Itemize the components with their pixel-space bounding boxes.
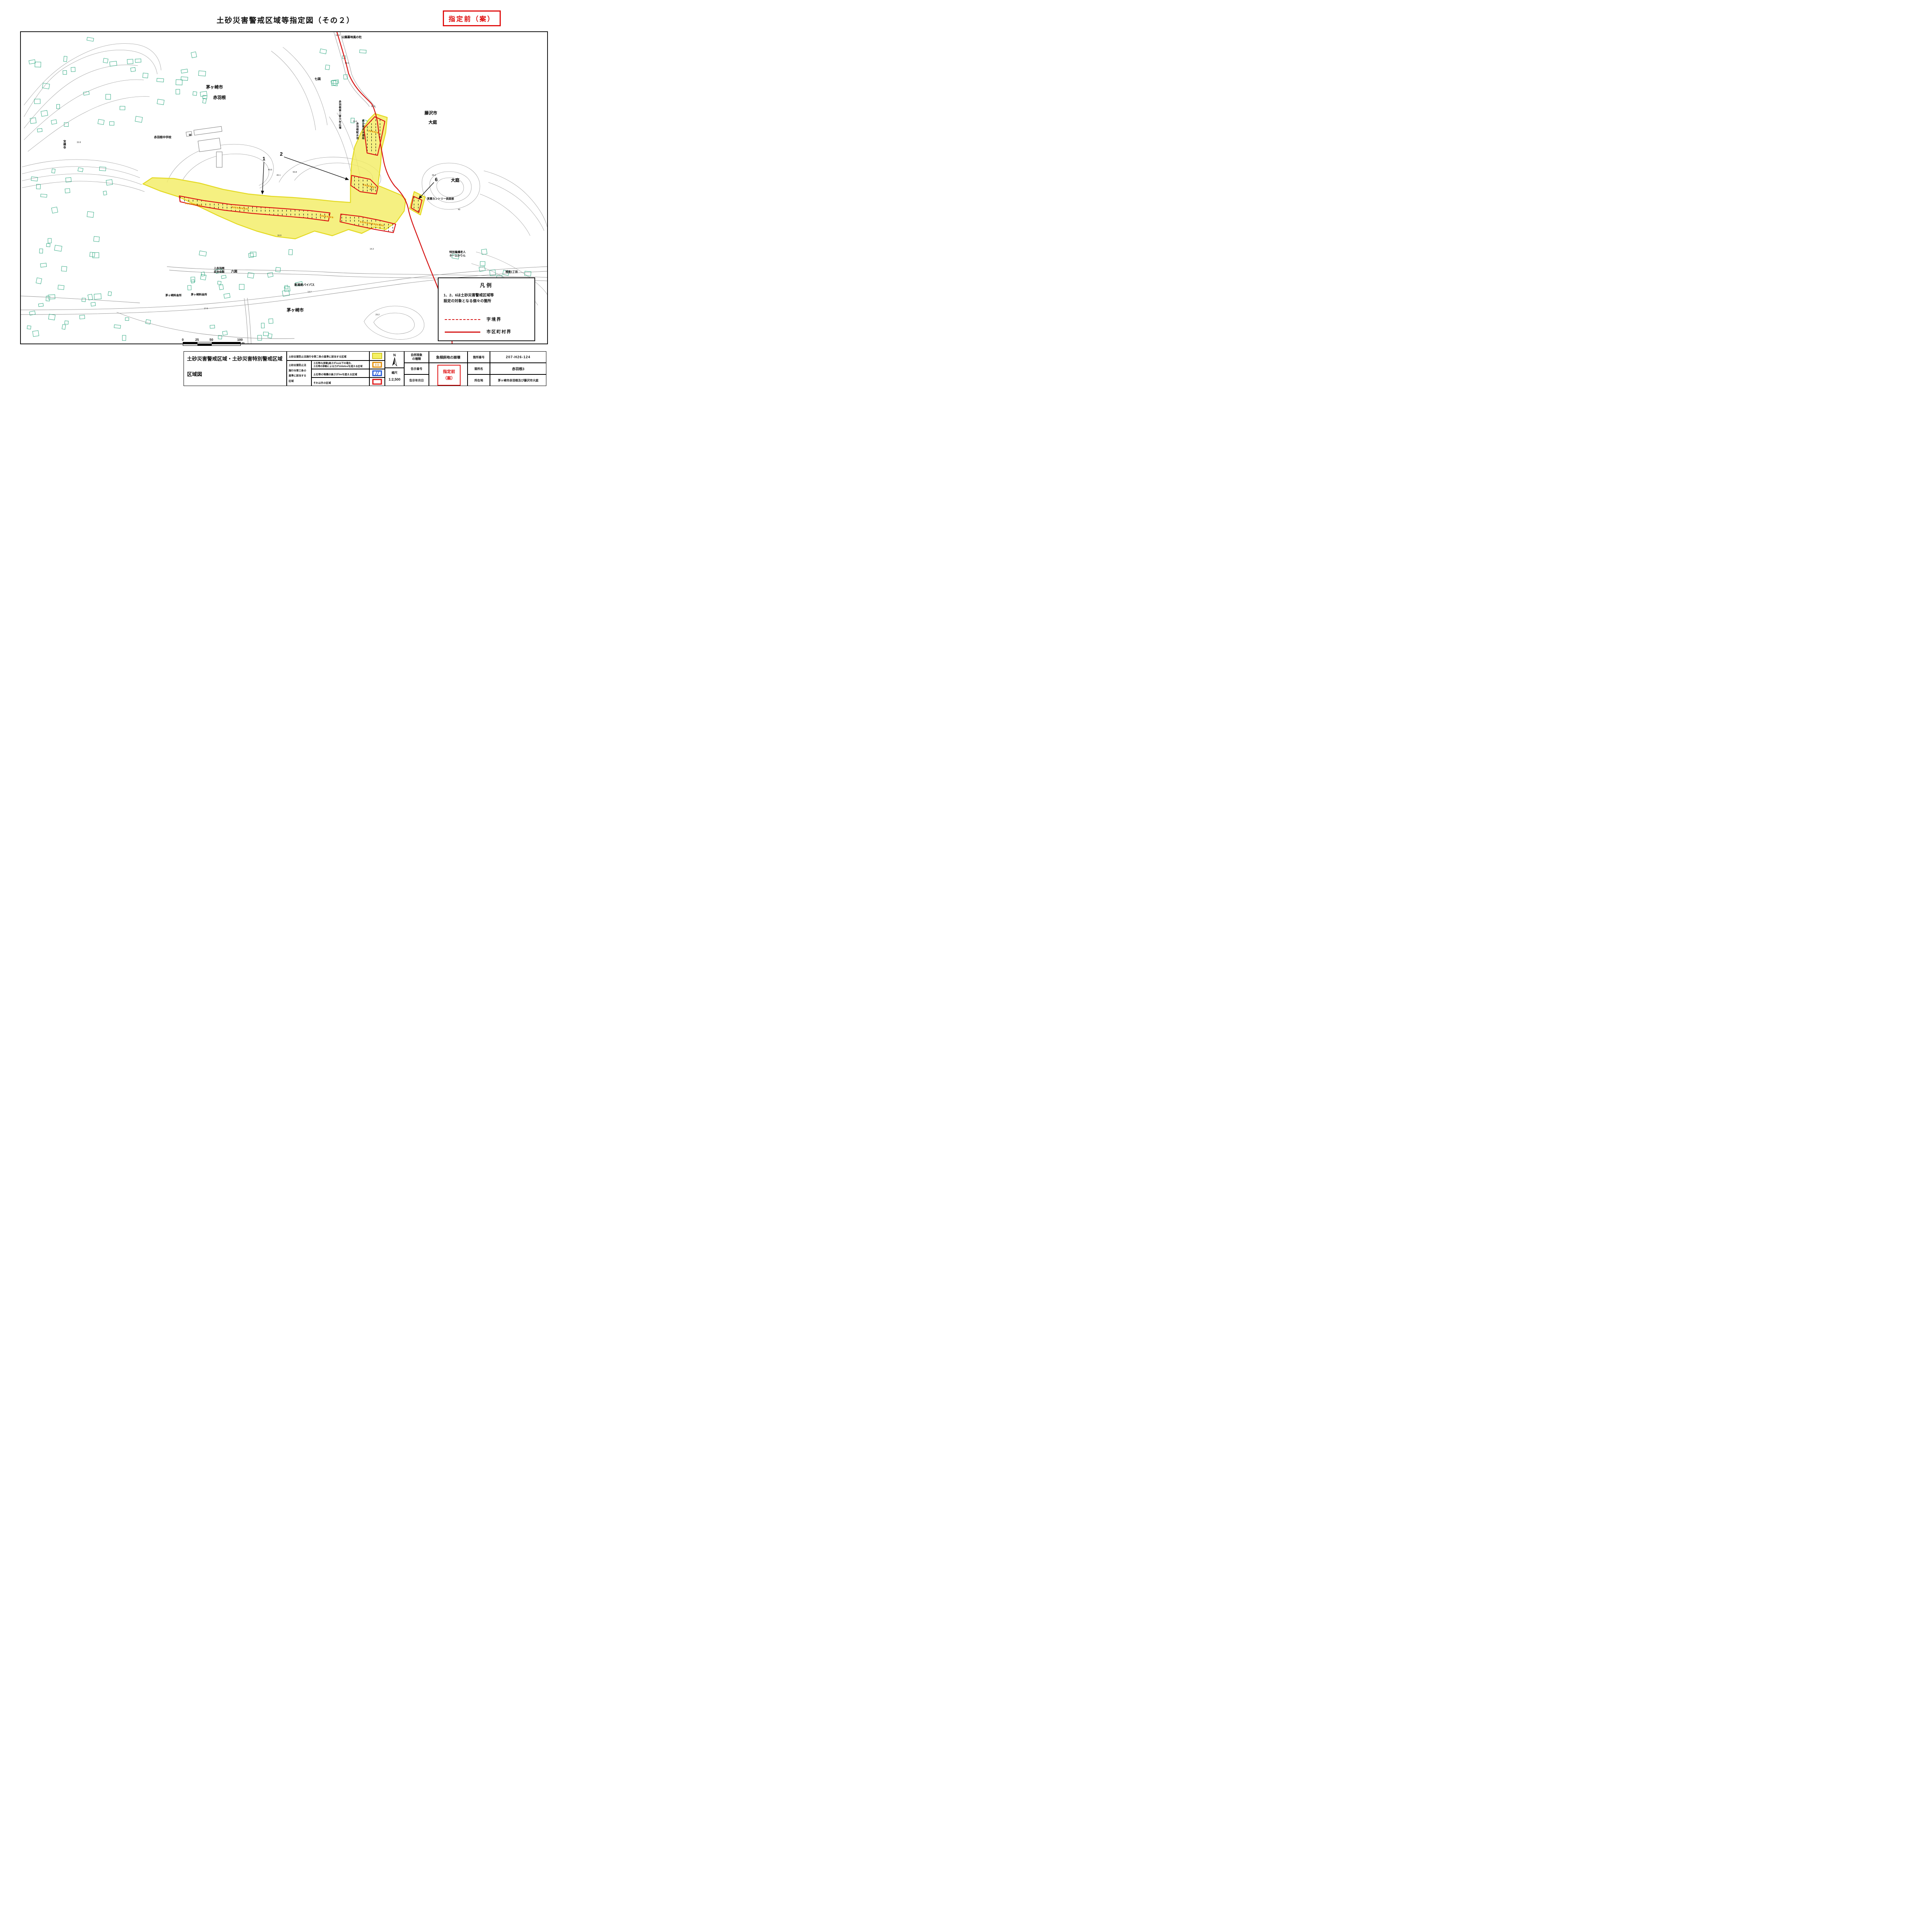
- map-label: 新湘南バイパス: [294, 283, 315, 286]
- map-label: 茅ヶ崎料金所: [165, 294, 182, 298]
- map-label: 茅ヶ崎料金所: [191, 294, 207, 297]
- map-label: 大庭: [451, 178, 459, 184]
- north-arrow-icon: N: [391, 353, 398, 367]
- orange-zone-swatch-icon: [372, 362, 382, 368]
- location-value: 茅ヶ崎市赤羽根及び藤沢市大庭: [498, 378, 539, 383]
- legend-item-aza-boundary: 字境界: [445, 317, 530, 322]
- law2-label: 土砂災害防止法施行令第二条の基準に該当する区域: [289, 354, 347, 358]
- scale-bar: 0 25 50 100 m: [183, 338, 248, 349]
- cell-scale: 縮尺 1:2,500: [385, 368, 404, 386]
- elevation-label: 46.1: [277, 174, 281, 177]
- site-name-label: 箇所名: [474, 367, 483, 371]
- scale-tick: 50: [209, 338, 213, 342]
- elevation-label: 40: [458, 209, 460, 211]
- cell-law3-row3: それ以外の区域: [311, 378, 369, 386]
- scale-label: 縮尺: [392, 371, 398, 375]
- info-table: 土砂災害警戒区域・土砂災害特別警戒区域 区域図 土砂災害防止法施行令第二条の基準…: [184, 351, 546, 386]
- cell-notice-value-stamp: 指定前 （案）: [429, 363, 468, 386]
- sheet-title-line2: 区域図: [187, 370, 202, 378]
- map-label: 6: [435, 177, 437, 183]
- elevation-label: 40.3: [370, 189, 374, 191]
- yellow-zone-swatch-icon: [372, 353, 382, 359]
- map-label: 赤羽根第二青少年広場: [338, 100, 341, 129]
- status-stamp: 指定前（案）: [443, 10, 501, 26]
- map-label: 茅ヶ崎市: [206, 85, 223, 90]
- elevation-label: 29.2: [376, 314, 380, 316]
- legend-item-label: 市区町村界: [486, 328, 512, 335]
- cell-site-name-label: 箇所名: [468, 363, 490, 374]
- law3-row3-desc: それ以外の区域: [313, 381, 331, 384]
- notice-date-label: 告示年月日: [409, 378, 424, 383]
- elevation-label: 50.8: [293, 171, 297, 173]
- cell-notice-no-label: 告示番号: [404, 363, 429, 374]
- cell-law2-swatch: [369, 351, 385, 361]
- elevation-label: 14.3: [370, 248, 374, 250]
- blue-zone-swatch-icon: [372, 370, 382, 376]
- svg-text:N: N: [393, 353, 396, 357]
- scale-tick: 25: [195, 338, 199, 342]
- cell-site-no-value: 207-H26-124: [490, 351, 546, 363]
- cell-north-arrow: N: [385, 351, 404, 368]
- elevation-label: 36.2: [432, 174, 436, 177]
- cell-notice-date-label: 告示年月日: [404, 374, 429, 386]
- map-label: W: [189, 134, 192, 138]
- map-label: 宝積寺: [63, 140, 66, 149]
- elevation-label: 17.6: [204, 308, 208, 310]
- map-label: 七図: [315, 77, 321, 81]
- map-label: 赤羽根中学校: [154, 135, 172, 139]
- elevation-label: 54.9: [336, 34, 340, 37]
- cell-law2-label: 土砂災害防止法施行令第二条の基準に該当する区域: [287, 351, 369, 361]
- scale-unit: m: [241, 341, 245, 345]
- map-sheet-page: 土砂災害警戒区域等指定図（その２）: [0, 0, 548, 388]
- phenomenon-label: 自然現象 の種類: [411, 353, 422, 361]
- map-label: 特別養護老人 ホームかりん: [449, 251, 466, 258]
- cell-orange-swatch: [369, 361, 385, 369]
- scale-tick: 0: [182, 338, 184, 342]
- elevation-label: 16.9: [277, 235, 282, 237]
- red-zone-swatch-icon: [372, 379, 382, 385]
- legend-box: 凡例 1、2、6は土砂災害警戒区域等 設定の対象となる個々の箇所 字境界 市区町…: [438, 277, 535, 341]
- elevation-label: 50.9: [371, 105, 376, 108]
- elevation-label: 13.7: [308, 291, 312, 293]
- cell-sheet-title: 土砂災害警戒区域・土砂災害特別警戒区域 区域図: [184, 351, 287, 386]
- dashed-red-line-sample: [445, 319, 480, 320]
- map-label: 藤沢市: [425, 111, 437, 116]
- site-no-value: 207-H26-124: [506, 355, 531, 359]
- legend-title: 凡例: [480, 281, 493, 289]
- phenomenon-value: 急傾斜地の崩壊: [436, 355, 460, 360]
- cell-law3-label: 土砂災害防止法 施行令第三条の 基準に該当する 区域: [287, 361, 311, 386]
- elevation-label: 54.9: [345, 62, 349, 65]
- map-label: 2: [280, 151, 282, 157]
- map-label: 赤羽根配水池: [355, 122, 358, 140]
- elevation-label: 50.6: [353, 121, 357, 123]
- map-label: 六図: [231, 270, 237, 274]
- cell-phenomenon-label: 自然現象 の種類: [404, 351, 429, 363]
- cell-location-value: 茅ヶ崎市赤羽根及び藤沢市大庭: [490, 374, 546, 386]
- legend-note: 1、2、6は土砂災害警戒区域等 設定の対象となる個々の箇所: [444, 293, 494, 304]
- cell-location-label: 所在地: [468, 374, 490, 386]
- cell-law3-row2: 土石等の堆積の高さが3mを超える区域: [311, 369, 369, 378]
- table-status-stamp: 指定前 （案）: [437, 365, 461, 386]
- solid-red-line-sample: [445, 332, 480, 333]
- cell-law3-row1: 土石等の(移動)高さが1m以下の場合、 土石等の移動による力が100kN/㎡を超…: [311, 361, 369, 369]
- location-label: 所在地: [474, 378, 483, 383]
- legend-item-label: 字境界: [486, 316, 502, 322]
- site-name-value: 赤羽根3: [512, 366, 524, 371]
- notice-no-label: 告示番号: [411, 367, 422, 371]
- elevation-label: 32.8: [77, 141, 81, 144]
- map-label: 公園墓地風の杜: [342, 35, 362, 39]
- map-label: 芙蓉カントリー倶楽部: [427, 198, 454, 201]
- law3-row2-desc: 土石等の堆積の高さが3mを超える区域: [313, 372, 357, 376]
- scale-bar-strip: [183, 342, 241, 346]
- map-label: 赤羽根: [213, 95, 226, 101]
- cell-blue-swatch: [369, 369, 385, 378]
- map-label: 1: [262, 156, 265, 162]
- law3-label: 土砂災害防止法 施行令第三条の 基準に該当する 区域: [289, 363, 306, 384]
- elevation-label: 49.6: [268, 169, 272, 171]
- map-label: 大庭: [429, 120, 437, 126]
- site-no-label: 箇所番号: [473, 355, 485, 359]
- map-frame: 茅ヶ崎市赤羽根藤沢市大庭大庭茅ヶ崎市公園墓地風の杜七図赤羽根中学校W芙蓉カントリ…: [20, 31, 548, 344]
- cell-phenomenon-value: 急傾斜地の崩壊: [429, 351, 468, 363]
- cell-site-name-value: 赤羽根3: [490, 363, 546, 374]
- map-label: 茅ヶ崎市: [287, 308, 304, 313]
- scale-value: 1:2,500: [389, 378, 401, 381]
- page-title: 土砂災害警戒区域等指定図（その２）: [216, 15, 354, 25]
- cell-site-no-label: 箇所番号: [468, 351, 490, 363]
- legend-item-municipal-boundary: 市区町村界: [445, 329, 530, 335]
- map-label: 上赤羽根 自治会館: [214, 267, 224, 274]
- map-label: 城南1丁目: [505, 271, 518, 274]
- sheet-title-line1: 土砂災害警戒区域・土砂災害特別警戒区域: [187, 355, 282, 362]
- law3-row1-desc: 土石等の(移動)高さが1m以下の場合、 土石等の移動による力が100kN/㎡を超…: [313, 362, 362, 369]
- cell-red-swatch: [369, 378, 385, 386]
- map-label: 県企業庁水道局: [361, 119, 364, 140]
